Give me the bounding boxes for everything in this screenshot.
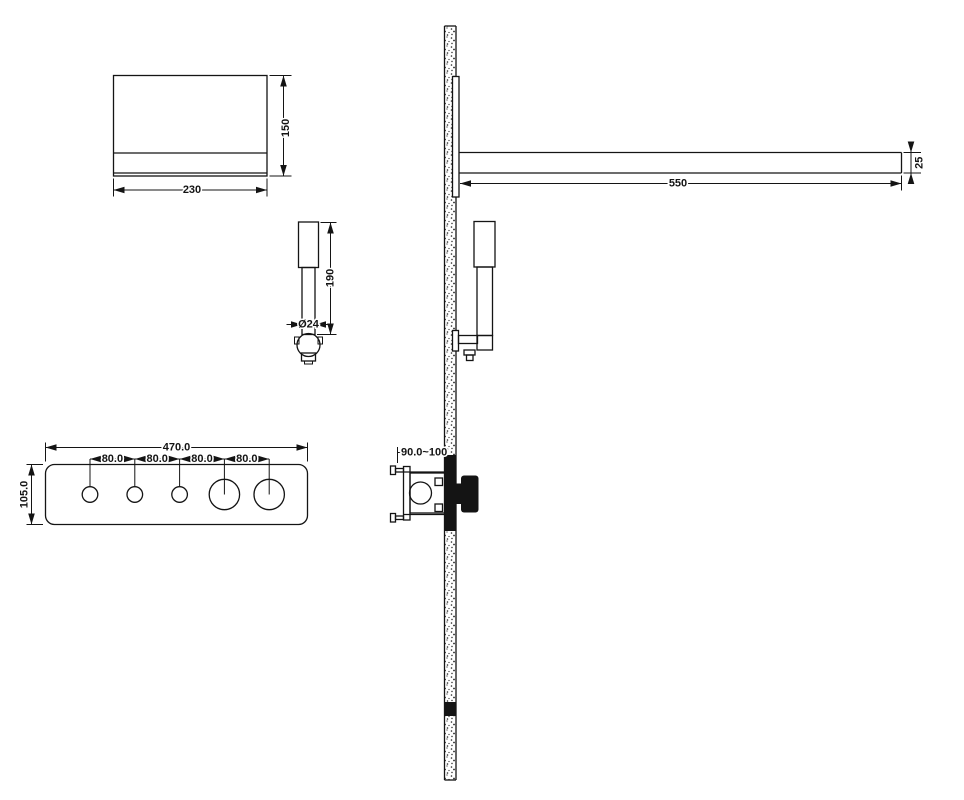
panel-button-1: [82, 487, 98, 503]
spacing-label-4: 80.0: [236, 453, 257, 465]
dim-head-height: 150: [270, 76, 293, 177]
dim-valve-depth: 90.0~100: [398, 447, 448, 464]
holder-cradle: [477, 336, 493, 351]
spacing-label-1: 80.0: [102, 453, 123, 465]
shower-head-top-view: [114, 76, 268, 177]
arm-wall-plate: [453, 77, 460, 198]
valve-screw-bottom: [391, 514, 404, 523]
arm-length-label: 550: [669, 178, 687, 190]
dim-hand-shower-length: 190: [317, 223, 337, 335]
hand-shower-front-view: [295, 222, 323, 364]
valve-cartridge-circle: [410, 482, 432, 504]
spacing-label-2: 80.0: [146, 453, 167, 465]
head-width-label: 230: [183, 184, 201, 196]
valve-body: [410, 473, 445, 513]
hand-shower-handle-side: [477, 267, 493, 336]
wall-dark-segment-valve: [444, 455, 457, 531]
holder-arm: [459, 336, 478, 344]
head-height-label: 150: [280, 119, 292, 137]
hand-shower-head: [299, 222, 319, 268]
spacing-label-3: 80.0: [191, 453, 212, 465]
dim-hand-shower-diameter: Ø24: [287, 319, 331, 331]
hand-shower-diameter-label: Ø24: [298, 319, 320, 331]
hand-shower-head-side: [474, 222, 495, 268]
dim-arm-length: 550: [460, 176, 902, 191]
holder-outlet: [464, 350, 475, 355]
control-panel-front-view: [46, 459, 308, 525]
dim-head-width: 230: [114, 179, 268, 197]
dim-panel-height: 105.0: [19, 465, 44, 525]
valve-knob: [461, 476, 479, 513]
technical-drawing-canvas: 550 25 230 150 190: [0, 0, 964, 800]
hand-shower-length-label: 190: [325, 269, 337, 287]
knob-stem: [456, 484, 462, 505]
wall-dark-segment-lower: [444, 702, 457, 716]
mixer-valve-side-view: [391, 466, 479, 522]
panel-width-label: 470.0: [163, 442, 191, 454]
control-panel-plate: [46, 465, 308, 525]
valve-depth-label: 90.0~100: [401, 447, 447, 459]
dim-arm-height: 25: [904, 143, 926, 183]
panel-button-2: [127, 487, 143, 503]
panel-button-3: [172, 487, 188, 503]
hand-shower-side-view: [453, 222, 496, 361]
holder-wall-plate: [453, 331, 459, 352]
valve-screw-top: [391, 466, 404, 475]
panel-height-label: 105.0: [19, 481, 31, 509]
shower-installation-diagram: 550 25 230 150 190: [0, 0, 964, 800]
arm-height-label: 25: [914, 157, 926, 169]
